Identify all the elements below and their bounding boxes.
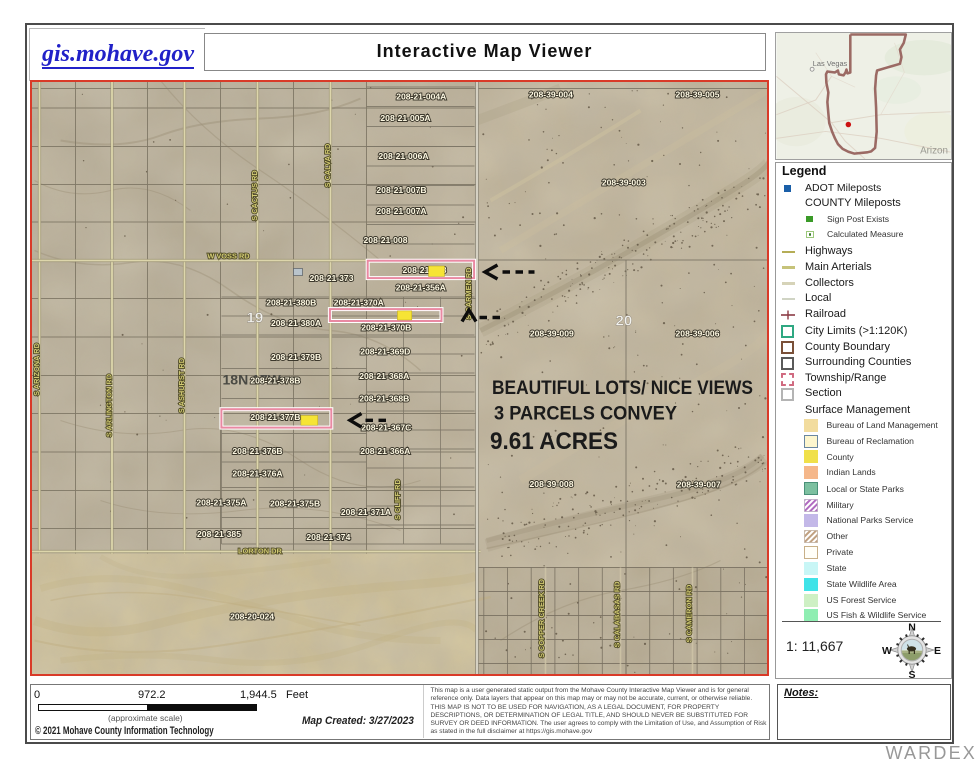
svg-text:E: E [934, 645, 941, 657]
svg-text:208-20-024: 208-20-024 [230, 611, 274, 621]
svg-text:Arizon: Arizon [920, 145, 948, 156]
svg-text:W VOSS RD: W VOSS RD [207, 251, 250, 260]
svg-text:208-21-368B: 208-21-368B [359, 393, 409, 403]
svg-text:208-21-006A: 208-21-006A [378, 150, 428, 160]
svg-text:208-21-380A: 208-21-380A [271, 318, 321, 328]
svg-text:LORTON DR: LORTON DR [238, 546, 282, 555]
svg-text:208-21-378B: 208-21-378B [250, 375, 300, 385]
svg-text:208-21-373: 208-21-373 [309, 273, 353, 283]
svg-text:208-39-005: 208-39-005 [675, 89, 719, 99]
svg-text:208-21-369D: 208-21-369D [360, 346, 410, 356]
svg-text:208-39-008: 208-39-008 [529, 479, 573, 489]
svg-text:S ARLINGTON RD: S ARLINGTON RD [104, 373, 113, 437]
svg-text:208-39-003: 208-39-003 [601, 177, 645, 187]
svg-text:S CACTUS RD: S CACTUS RD [250, 169, 259, 220]
svg-text:S CAMERON RD: S CAMERON RD [684, 583, 693, 642]
svg-text:19: 19 [246, 309, 263, 326]
svg-text:208-21-005A: 208-21-005A [380, 113, 430, 123]
svg-text:S CALABASAS RD: S CALABASAS RD [612, 580, 621, 647]
svg-text:208-21-366A: 208-21-366A [360, 445, 410, 455]
svg-text:208-21-377B: 208-21-377B [250, 412, 300, 422]
svg-text:208-21-004A: 208-21-004A [396, 91, 446, 101]
svg-text:208-21-370A: 208-21-370A [333, 297, 383, 307]
svg-text:Las Vegas: Las Vegas [812, 58, 847, 67]
svg-text:208-21-376A: 208-21-376A [232, 468, 282, 478]
svg-text:208-21-367C: 208-21-367C [361, 422, 411, 432]
svg-text:S ARIZONA RD: S ARIZONA RD [32, 342, 41, 395]
svg-text:208-21-379B: 208-21-379B [271, 351, 321, 361]
svg-text:S CLIFF RD: S CLIFF RD [392, 478, 401, 519]
svg-text:N: N [908, 622, 916, 634]
svg-text:9.61 ACRES: 9.61 ACRES [490, 428, 618, 455]
svg-text:S: S [908, 669, 915, 680]
svg-text:20: 20 [615, 312, 632, 329]
svg-text:3 PARCELS CONVEY: 3 PARCELS CONVEY [494, 402, 677, 424]
svg-text:208-21-370B: 208-21-370B [361, 322, 411, 332]
svg-text:BEAUTIFUL LOTS/ NICE VIEWS: BEAUTIFUL LOTS/ NICE VIEWS [492, 377, 753, 399]
svg-text:208-21-371A: 208-21-371A [340, 507, 390, 517]
svg-text:208-39-009: 208-39-009 [529, 328, 573, 338]
svg-text:208-21-385: 208-21-385 [197, 528, 241, 538]
svg-text:208-39-007: 208-39-007 [676, 479, 720, 489]
svg-text:W: W [882, 645, 892, 657]
svg-text:208-21-356A: 208-21-356A [395, 282, 445, 292]
svg-text:208-39-004: 208-39-004 [528, 89, 572, 99]
svg-text:208-21-380B: 208-21-380B [266, 297, 316, 307]
svg-text:208-21-368A: 208-21-368A [359, 371, 409, 381]
svg-text:S CALVA RD: S CALVA RD [323, 142, 332, 186]
svg-text:208-21-007B: 208-21-007B [376, 184, 426, 194]
svg-text:208-21-007A: 208-21-007A [376, 205, 426, 215]
svg-text:208-21-374: 208-21-374 [306, 532, 350, 542]
svg-text:S COPPER CREEK RD: S COPPER CREEK RD [536, 578, 545, 658]
svg-text:208-21-376B: 208-21-376B [232, 445, 282, 455]
svg-text:208-21-375B: 208-21-375B [270, 498, 320, 508]
svg-text:208-21-375A: 208-21-375A [196, 497, 246, 507]
svg-text:208-39-006: 208-39-006 [675, 328, 719, 338]
svg-text:208-21-008: 208-21-008 [363, 235, 407, 245]
svg-text:S ASHURST RD: S ASHURST RD [177, 357, 186, 413]
